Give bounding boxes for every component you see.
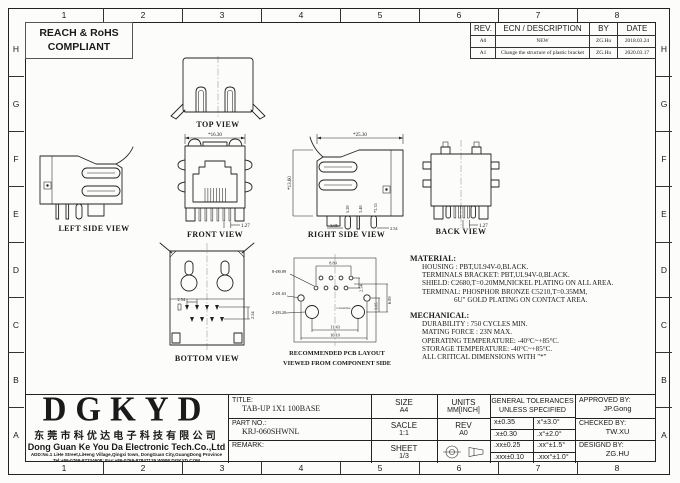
grid-letter: H [8,22,24,77]
grid-letter: A [656,408,672,462]
back-view-drawing: 1.27 [408,138,514,232]
units-cell: UNITS MM[INCH] [437,395,490,418]
scale-value: 1:1 [399,430,409,437]
remark-cell: REMARK: [228,440,371,463]
tolerance-heading-line1: GENERAL TOLERANCES [491,397,573,406]
tolerance-heading: GENERAL TOLERANCES UNLESS SPECIFIED [490,395,575,417]
right-pin3-dim: *3.35 [373,203,378,213]
right-pin1-dim: 5.28 [345,205,350,213]
pcb-span-dim: 8.89 [329,261,337,266]
back-view-label: BACK VIEW [408,227,514,236]
company-name-cn: 东莞市科优达电子科技有限公司 [34,427,219,442]
compliance-line2: COMPLIANT [26,40,132,54]
material-heading: MATERIAL: [410,254,662,263]
grid-letter: E [656,187,672,242]
date-header: DATE [618,22,656,35]
part-no-value: KRJ-060SHWNL [232,427,371,436]
sheet-label: SHEET [391,444,418,453]
pcb-label-line2: VIEWED FROM COMPONENT SIDE [263,359,411,369]
description-value: NEW [496,36,590,47]
tolerance-linear: x±0.35 [490,417,533,429]
compliance-line1: REACH & RoHS [26,26,132,40]
units-value: MM[INCH] [447,407,480,414]
grid-letter: H [656,22,672,77]
size-label: SIZE [395,398,413,407]
pcb-pin-callout: 8-Ø0.89 [272,269,286,274]
right-dim-a: 3.05 [330,223,338,228]
tolerance-angular: .xx°±1.5° [533,440,575,452]
material-line: SHIELD: C2680,T=0.20MM,NICKEL PLATING ON… [410,279,662,287]
tolerance-angular: x°±3.0° [533,417,575,429]
approved-value: JP.Gong [579,404,656,413]
drawing-sheet: 1 2 3 4 5 6 7 8 1 2 3 4 5 6 7 8 H G F E … [0,0,680,483]
revision-row: A1 Change the structure of plastic brack… [470,48,656,60]
grid-letter: F [656,132,672,187]
pcb-stagger-dim: 2.54 [359,284,364,292]
pcb-right-dim-b: 3.05 [374,302,379,310]
left-side-view-label: LEFT SIDE VIEW [30,224,158,233]
rev-cell: REV A0 [437,418,490,441]
pcb-centerline-label: Centerline [337,306,352,310]
remark-label: REMARK: [232,442,371,449]
rev-header: REV. [471,22,496,35]
top-view-label: TOP VIEW [166,120,270,129]
rev-label: REV [455,421,471,430]
part-no-label: PART NO.: [232,420,371,427]
material-line: TERMINAL: PHOSPHOR BRONZE C5210,T=0.35MM… [410,288,662,296]
grid-number: 5 [341,8,420,22]
material-line: 6U" GOLD PLATING ON CONTACT AREA. [410,296,662,304]
grid-number: 2 [104,8,183,22]
tolerance-angular: .x°±2.0° [533,429,575,441]
designed-cell: DESIGND BY: ZG.HU [575,440,656,463]
left-side-view-drawing [30,142,158,222]
grid-number: 8 [578,8,656,22]
right-side-view-label: RIGHT SIDE VIEW [283,230,410,239]
sheet-cell: SHEET 1/3 [371,440,437,463]
mechanical-line: ALL CRITICAL DIMENSIONS WITH "*" [410,353,662,361]
tolerance-heading-line2: UNLESS SPECIFIED [499,406,566,415]
top-view-drawing [166,56,270,120]
company-cell: DGKYD 东莞市科优达电子科技有限公司 Dong Guan Ke You Da… [25,395,228,463]
grid-letter: A [8,408,24,462]
checked-value: TW.XU [579,427,656,436]
by-value: ZG.Hu [590,36,618,47]
checked-cell: CHECKED BY: TW.XU [575,418,656,441]
bottom-row-dim: 2.54 [177,297,185,302]
revision-row: A0 NEW ZG.Hu 2018.03.24 [470,36,656,48]
pcb-layout-label: RECOMMENDED PCB LAYOUT VIEWED FROM COMPO… [263,349,411,368]
grid-number: 7 [499,461,578,475]
right-depth-dim: *25.30 [353,133,367,138]
third-angle-projection-icon [441,443,487,461]
front-view-label: FRONT VIEW [158,230,272,239]
bottom-view-drawing: 2.54 2.54 [150,241,264,353]
title-label: TITLE: [232,397,371,404]
size-value: A4 [400,407,409,414]
material-line: TERMINALS BRACKET: PBT,UL94V-0,BLACK. [410,271,662,279]
revision-table: REV. ECN / DESCRIPTION BY DATE A0 NEW ZG… [470,22,656,59]
grid-number: 3 [183,8,262,22]
notes-block: MATERIAL: HOUSING : PBT,UL94V-0,BLACK. T… [410,252,662,361]
revision-header-row: REV. ECN / DESCRIPTION BY DATE [470,22,656,36]
rev-value: A1 [471,48,496,59]
grid-numbers-top: 1 2 3 4 5 6 7 8 [25,8,656,22]
mechanical-line: MATING FORCE : 23N MAX. [410,328,662,336]
approved-label: APPROVED BY: [579,397,656,404]
grid-letter: F [8,132,24,187]
bottom-col-dim: 2.54 [250,311,255,319]
pcb-right-dim-a: 6.89 [387,296,392,304]
grid-number: 1 [25,8,104,22]
grid-letter: C [8,298,24,353]
pcb-label-line1: RECOMMENDED PCB LAYOUT [263,349,411,359]
pcb-shield-callout: 2-Ø1.63 [272,291,286,296]
grid-letters-right: H G F E D C B A [656,22,672,462]
tolerance-angular: .xxx°±1.0° [533,452,575,464]
scale-label: SACLE [391,421,417,430]
checked-label: CHECKED BY: [579,420,656,427]
grid-number: 5 [341,461,420,475]
pcb-overall-dim: 16.10 [330,333,340,338]
right-pin2-dim: 3.48 [358,205,363,213]
size-cell: SIZE A4 [371,395,437,418]
by-header: BY [590,22,618,35]
bottom-view-label: BOTTOM VIEW [150,354,264,363]
sheet-value: 1/3 [399,453,409,460]
title-value: TAB-UP 1X1 100BASE [232,404,371,413]
scale-cell: SACLE 1:1 [371,418,437,441]
pcb-post-callout: 2-Ø3.20 [272,310,286,315]
pcb-layout-drawing: 8.89 2.54 8-Ø0.89 2-Ø1.63 2-Ø3.20 11.43 … [270,252,404,348]
description-header: ECN / DESCRIPTION [496,22,590,35]
company-name-en: Dong Guan Ke You Da Electronic Tech.Co.,… [28,442,226,452]
tolerance-linear: .xxx±0.10 [490,452,533,464]
grid-number: 6 [420,461,499,475]
title-cell: TITLE: TAB-UP 1X1 100BASE [228,395,371,418]
front-pitch-dim: 1.27 [241,224,250,229]
rev-value: A0 [459,430,468,437]
front-view-drawing: *16.30 1.27 [158,130,272,230]
designed-value: ZG.HU [579,449,656,458]
grid-letters-left: H G F E D C B A [8,22,24,462]
grid-number: 7 [499,8,578,22]
mechanical-heading: MECHANICAL: [410,311,662,320]
date-value: 2020.03.17 [618,48,656,59]
company-contact: Tel:+86-0769-87334608; Fax:+86-0769-8784… [53,458,200,464]
company-logo: DGKYD [43,393,211,428]
right-height-dim: *13.60 [288,176,293,190]
projection-cell [437,440,490,463]
grid-letter: E [8,187,24,242]
tolerance-linear: .x±0.30 [490,429,533,441]
part-no-cell: PART NO.: KRJ-060SHWNL [228,418,371,441]
tolerance-linear: .xx±0.25 [490,440,533,452]
grid-letter: B [8,353,24,408]
mechanical-line: STORAGE TEMPERATURE: -40°C~+85°C. [410,345,662,353]
grid-number: 8 [578,461,656,475]
approved-cell: APPROVED BY: JP.Gong [575,395,656,418]
front-width-dim: *16.30 [208,133,222,138]
grid-letter: G [656,77,672,132]
designed-label: DESIGND BY: [579,442,656,449]
mechanical-line: DURABILITY : 750 CYCLES MIN. [410,320,662,328]
grid-number: 4 [262,8,341,22]
date-value: 2018.03.24 [618,36,656,47]
title-block: DGKYD 东莞市科优达电子科技有限公司 Dong Guan Ke You Da… [25,394,656,462]
by-value: ZG.Hu [590,48,618,59]
mechanical-line: OPERATING TEMPERATURE: -40°C~+85°C. [410,337,662,345]
pcb-post-spacing-dim: 11.43 [330,325,340,330]
right-side-view-drawing: *25.30 *13.60 5.28 3.48 *3.35 3.05 (0.74… [283,130,410,230]
grid-letter: D [8,243,24,298]
description-value: Change the structure of plastic bracket [496,48,590,59]
units-label: UNITS [452,398,476,407]
material-line: HOUSING : PBT,UL94V-0,BLACK. [410,263,662,271]
grid-number: 4 [262,461,341,475]
grid-number: 6 [420,8,499,22]
rev-value: A0 [471,36,496,47]
grid-letter: G [8,77,24,132]
compliance-badge: REACH & RoHS COMPLIANT [25,22,133,59]
